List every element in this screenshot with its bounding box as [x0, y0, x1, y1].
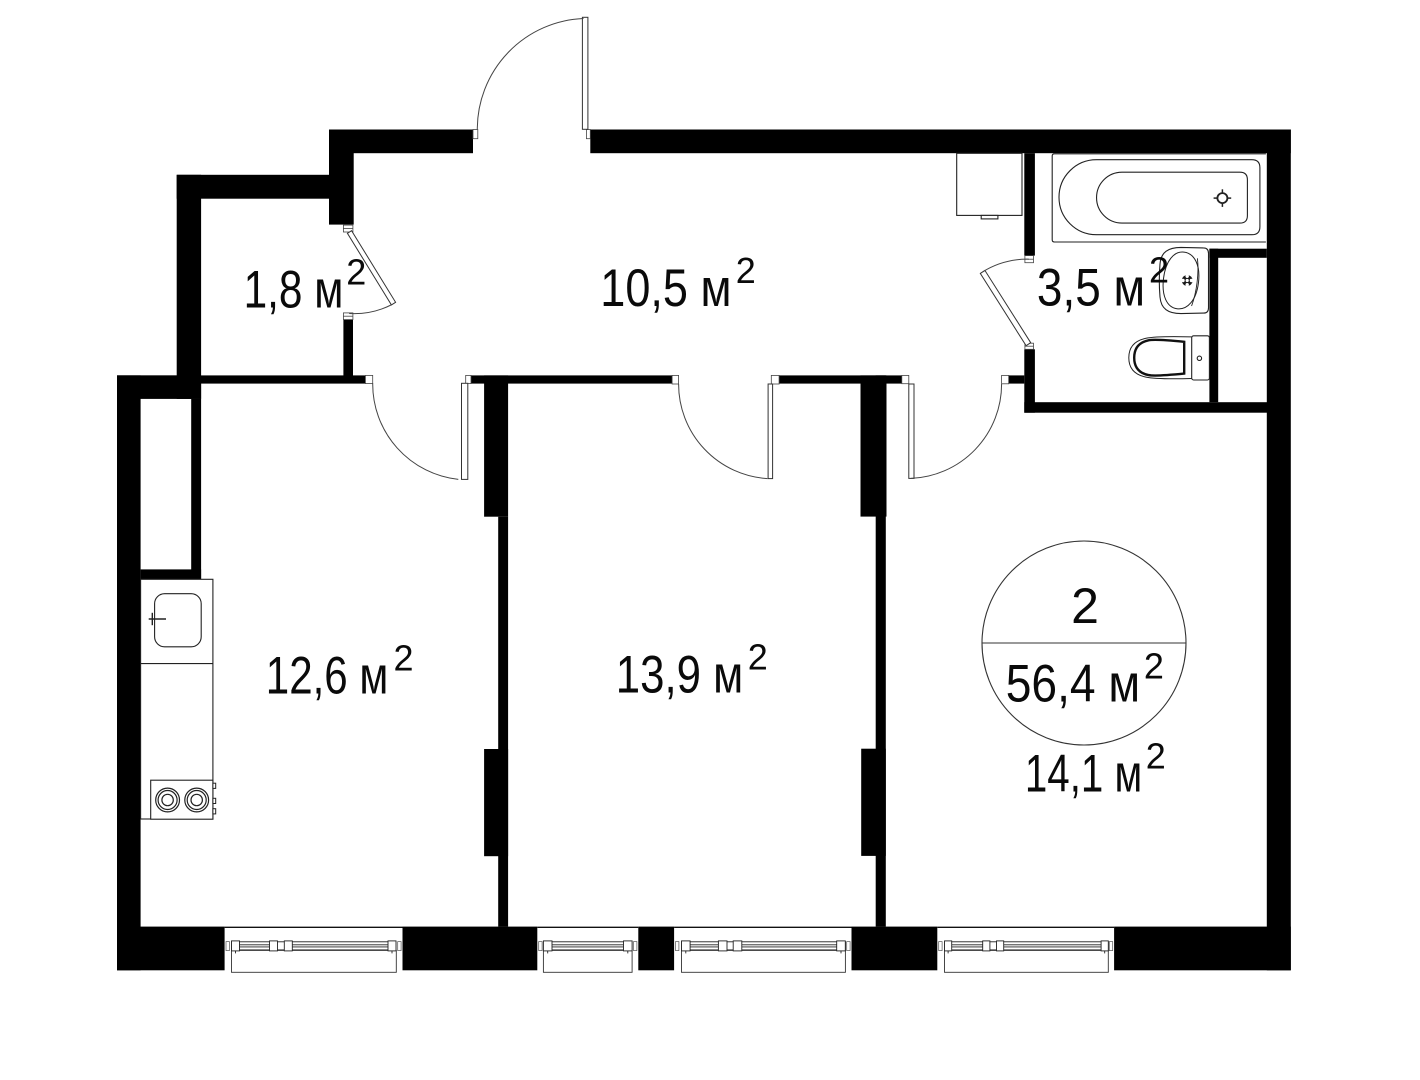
svg-text:2: 2 — [1149, 249, 1169, 290]
svg-text:2: 2 — [1146, 736, 1166, 777]
svg-text:2: 2 — [736, 250, 756, 291]
svg-text:2: 2 — [394, 637, 414, 678]
svg-text:3,5 м: 3,5 м — [1037, 258, 1145, 317]
svg-text:12,6 м: 12,6 м — [266, 646, 389, 705]
svg-text:56,4 м: 56,4 м — [1006, 655, 1140, 714]
svg-text:2: 2 — [1071, 578, 1099, 634]
svg-text:2: 2 — [1144, 646, 1164, 687]
svg-text:13,9 м: 13,9 м — [616, 645, 743, 704]
svg-text:14,1 м: 14,1 м — [1025, 745, 1142, 804]
svg-text:2: 2 — [748, 636, 768, 677]
svg-text:1,8 м: 1,8 м — [244, 261, 344, 320]
svg-text:2: 2 — [346, 252, 366, 293]
svg-text:10,5 м: 10,5 м — [600, 259, 731, 318]
